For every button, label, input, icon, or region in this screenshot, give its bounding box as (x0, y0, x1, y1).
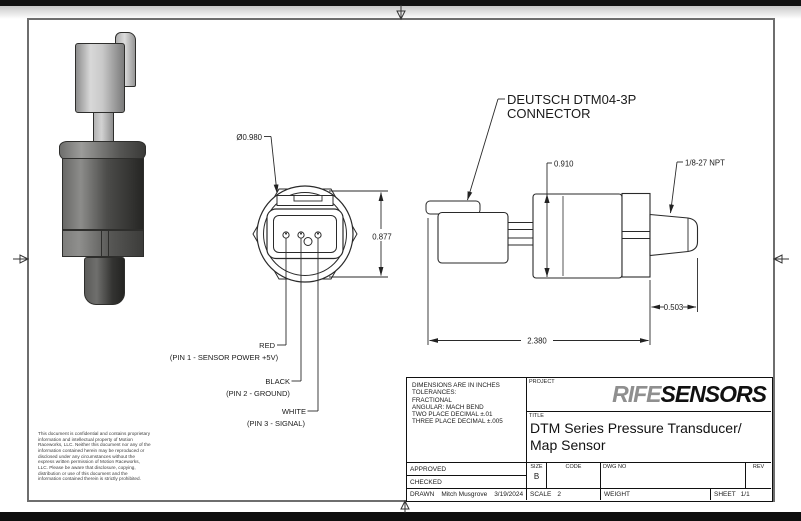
dim-0877-label: 0.877 (372, 233, 392, 242)
thread-label: 1/8-27 NPT (685, 159, 725, 168)
dwg-no-cell: DWG NO (601, 462, 746, 488)
front-view (253, 186, 357, 282)
approved-row: APPROVED (407, 462, 527, 475)
sensor-3d-body (62, 158, 144, 230)
hex-facet-line (108, 231, 109, 256)
pin2-wire-label: BLACK (265, 377, 290, 386)
code-label: CODE (547, 463, 600, 471)
pin3-desc-label: (PIN 3 - SIGNAL) (247, 419, 305, 428)
drawing-sheet: RED (PIN 1 - SENSOR POWER +5V) BLACK (PI… (0, 0, 801, 521)
drawn-row: DRAWN Mitch Musgrove 3/19/2024 (407, 488, 527, 500)
confidentiality-note: This document is confidential and contai… (38, 431, 151, 482)
front-keyway-hole (304, 238, 312, 246)
tolerance-note-line: THREE PLACE DECIMAL ±.005 (412, 418, 526, 425)
tolerance-note-line: TWO PLACE DECIMAL ±.01 (412, 411, 526, 418)
front-pins (283, 232, 321, 238)
tolerance-note-line: FRACTIONAL (412, 397, 526, 404)
tolerance-notes: DIMENSIONS ARE IN INCHES TOLERANCES: FRA… (407, 378, 527, 462)
rev-label: REV (746, 463, 771, 471)
drawn-label: DRAWN (410, 491, 434, 498)
rev-cell: REV (746, 462, 771, 488)
hex-facet-line (101, 231, 102, 256)
dwg-no-label: DWG NO (601, 463, 745, 471)
sheet-cell: SHEET 1/1 (711, 488, 771, 500)
pin3-wire-label: WHITE (282, 407, 306, 416)
title-label: TITLE (527, 412, 771, 420)
dim-0503-label: 0.503 (664, 303, 684, 312)
dim-0910-label: 0.910 (554, 160, 574, 169)
side-hex (622, 194, 650, 278)
checked-label: CHECKED (410, 479, 442, 486)
size-value: B (527, 472, 546, 481)
side-view (426, 194, 698, 279)
pin1-wire-label: RED (259, 341, 275, 350)
checked-row: CHECKED (407, 475, 527, 488)
title-cell: TITLE DTM Series Pressure Transducer/ Ma… (527, 412, 771, 462)
tolerance-note-line: DIMENSIONS ARE IN INCHES (412, 382, 526, 389)
tolerance-note-line: ANGULAR: MACH BEND (412, 404, 526, 411)
center-mark-bottom-icon (401, 501, 409, 513)
side-stem-lines (508, 223, 533, 246)
tolerance-note-line: TOLERANCES: (412, 389, 526, 396)
side-connector-body (438, 213, 508, 264)
approved-label: APPROVED (410, 466, 446, 473)
scale-value: 2 (557, 491, 561, 498)
size-cell: SIZE B (527, 462, 547, 488)
sensor-3d-stem (93, 112, 114, 143)
dim-diameter-label: Ø0.980 (236, 133, 262, 142)
size-label: SIZE (527, 463, 546, 471)
front-shell-outer (267, 209, 343, 259)
logo-rife-text: RIFE (612, 381, 660, 407)
title-block: DIMENSIONS ARE IN INCHES TOLERANCES: FRA… (406, 377, 773, 502)
project-cell: PROJECT RIFESENSORS (527, 378, 771, 412)
scale-cell: SCALE 2 (527, 488, 601, 500)
sheet-value: 1/1 (741, 491, 750, 498)
drawing-title-line1: DTM Series Pressure Transducer/ (530, 420, 771, 437)
center-mark-left-icon (13, 255, 28, 263)
connector-note-leader (468, 99, 506, 200)
sensor-3d-hex-nut (62, 230, 144, 257)
sensor-3d-connector (75, 43, 125, 113)
drawn-date: 3/19/2024 (494, 491, 523, 498)
drawn-by: Mitch Musgrove (441, 491, 487, 498)
sensor-3d-thread-tip (84, 257, 125, 305)
weight-cell: WEIGHT (601, 488, 711, 500)
pin2-desc-label: (PIN 2 - GROUND) (226, 389, 290, 398)
code-cell: CODE (547, 462, 601, 488)
weight-label: WEIGHT (604, 491, 630, 498)
front-latch-notch (294, 196, 322, 202)
side-npt-fitting (650, 215, 698, 256)
connector-note-line1: DEUTSCH DTM04-3P (507, 92, 636, 107)
center-mark-top-icon (397, 5, 405, 19)
pin1-desc-label: (PIN 1 - SENSOR POWER +5V) (170, 353, 279, 362)
thread-leader (671, 162, 684, 213)
rife-sensors-logo: RIFESENSORS (612, 383, 766, 406)
sheet-label: SHEET (714, 491, 736, 498)
connector-note-line2: CONNECTOR (507, 106, 591, 121)
center-mark-right-icon (774, 255, 789, 263)
dim-2380-label: 2.380 (527, 337, 547, 346)
drawing-title: DTM Series Pressure Transducer/ Map Sens… (527, 420, 771, 454)
logo-sensors-text: SENSORS (661, 381, 766, 407)
scale-label: SCALE (530, 491, 551, 498)
drawing-title-line2: Map Sensor (530, 437, 771, 454)
side-main-body (533, 194, 622, 278)
dim-diameter-leader (264, 137, 277, 194)
